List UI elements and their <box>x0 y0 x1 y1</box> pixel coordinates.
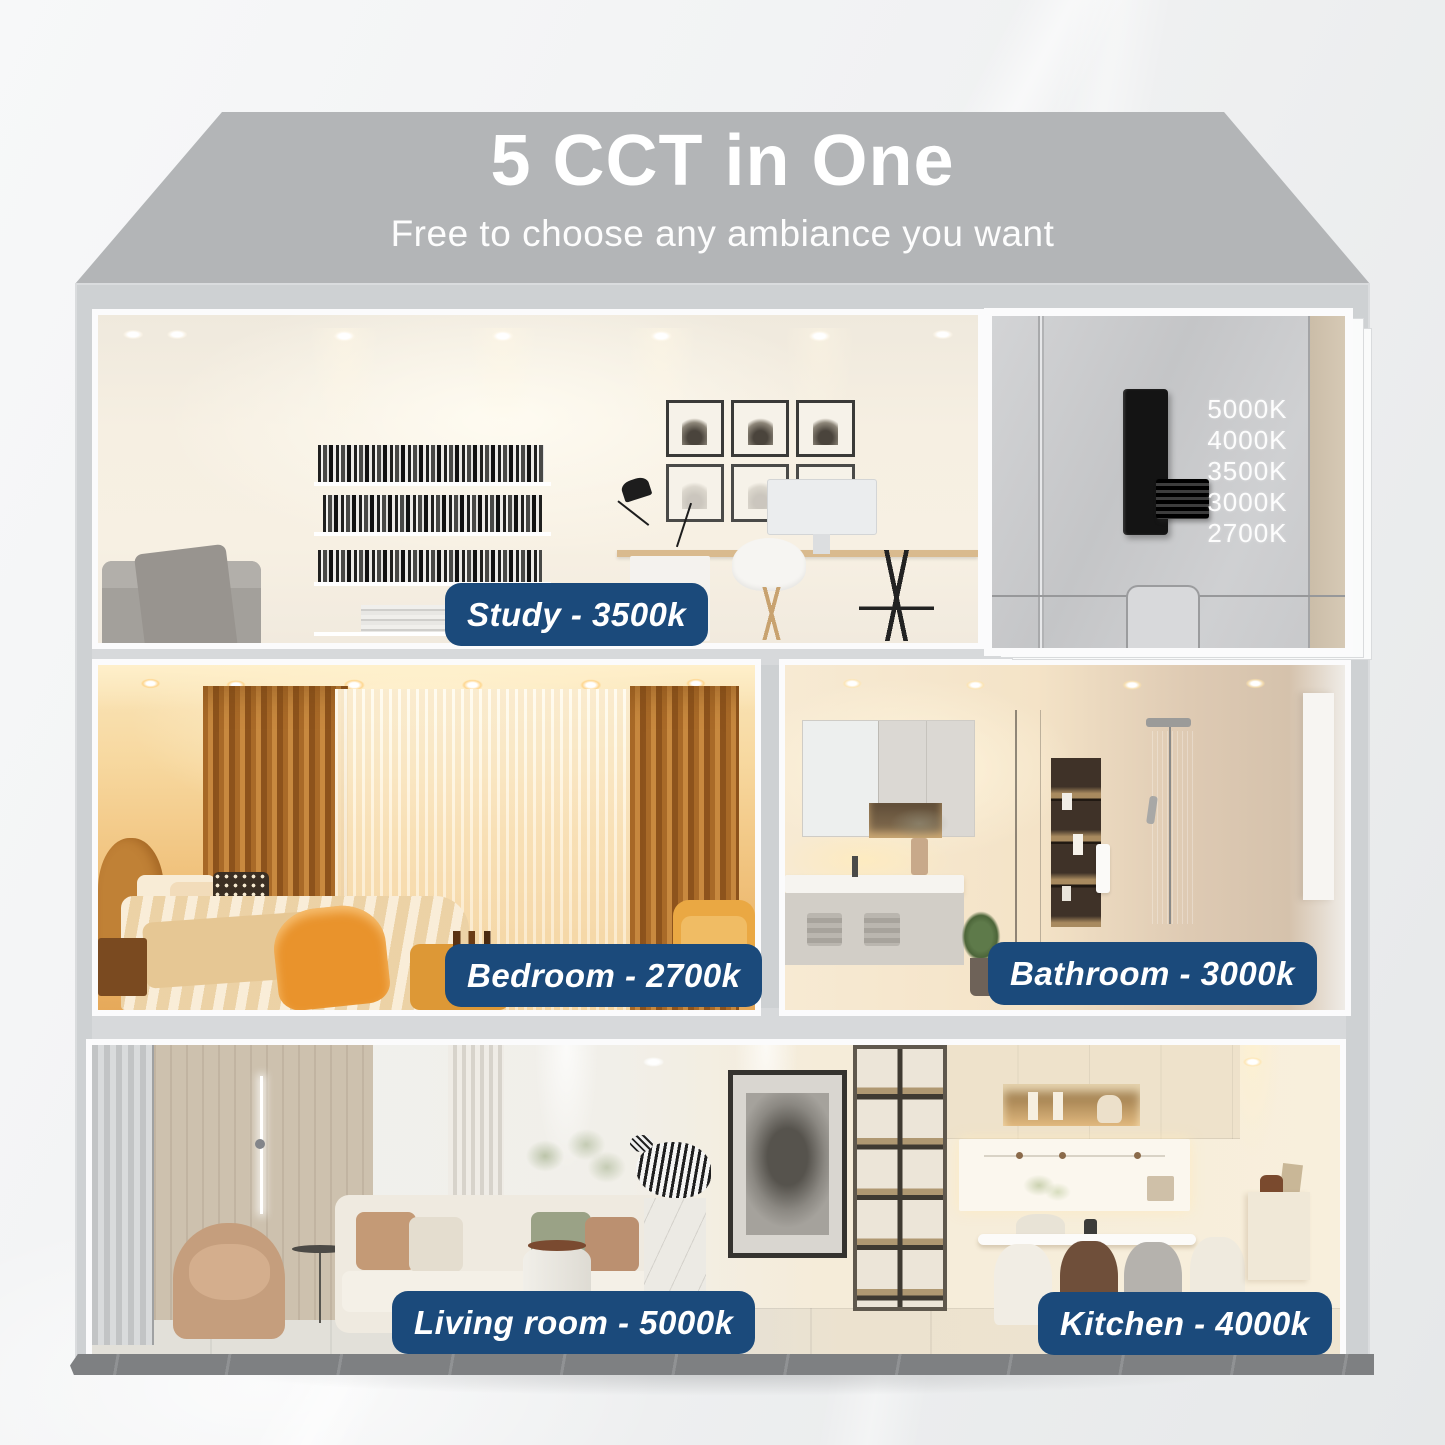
glass-door-edge <box>1040 710 1041 965</box>
toiletry-bottle <box>1062 793 1072 810</box>
product-infographic: 5 CCT in One Free to choose any ambiance… <box>0 0 1445 1445</box>
toiletry-bottle <box>1073 834 1083 855</box>
sofa-pillow <box>356 1212 417 1270</box>
plate-seam <box>1038 316 1044 648</box>
study-recessed-lights <box>98 318 978 351</box>
desk-chair <box>732 538 807 590</box>
side-cabinet <box>1248 1192 1310 1280</box>
page-title: 5 CCT in One <box>490 122 954 201</box>
cct-option: 5000K <box>1207 394 1287 425</box>
shower-pole <box>1169 724 1171 924</box>
living-window-curtain <box>92 1045 154 1345</box>
study-label: Study - 3500k <box>445 583 708 646</box>
vanity-cabinet <box>785 893 964 965</box>
towel-stack <box>807 913 843 946</box>
cct-option: 3500K <box>1207 456 1287 487</box>
vase <box>911 838 928 876</box>
living-armchair <box>173 1223 285 1339</box>
toiletry-bottle <box>1062 886 1071 902</box>
glass-door-edge <box>1015 710 1017 965</box>
small-sculpture <box>1260 1175 1282 1194</box>
desktop-computer <box>767 479 877 535</box>
bathroom-side-panel <box>1303 693 1334 900</box>
cct-selector-knob <box>1156 479 1209 519</box>
slab-shadow <box>120 1375 1340 1401</box>
table-flowers <box>1009 1170 1084 1214</box>
living-plant <box>504 1126 641 1201</box>
study-sofa <box>102 561 260 649</box>
bookshelf-row <box>314 536 552 586</box>
picture-frame <box>731 400 789 457</box>
cct-option: 3000K <box>1207 487 1287 518</box>
bookshelf-row <box>314 486 552 536</box>
bookshelf-row <box>314 436 552 486</box>
sofa-blanket <box>134 543 238 649</box>
hanging-towel <box>1096 844 1111 892</box>
picture-frame <box>796 400 854 457</box>
shower-head <box>1146 718 1191 726</box>
cct-option: 4000K <box>1207 425 1287 456</box>
kitchen-label: Kitchen - 4000k <box>1038 1292 1332 1355</box>
bathroom-recessed-lights <box>785 668 1345 699</box>
plate-edge-strip <box>1310 316 1345 648</box>
rail-hook <box>1016 1152 1023 1159</box>
zebra-sculpture <box>636 1142 711 1198</box>
decor-bust <box>1097 1095 1122 1123</box>
towel-stack <box>864 913 900 946</box>
wine-glass <box>1053 1092 1063 1120</box>
cct-option-list: 5000K 4000K 3500K 3000K 2700K <box>1207 394 1287 549</box>
reed-diffuser <box>1147 1176 1174 1201</box>
page-subtitle: Free to choose any ambiance you want <box>391 213 1055 255</box>
sofa-pillow <box>585 1217 639 1272</box>
bed-orange-throw <box>270 901 392 1012</box>
cct-option: 2700K <box>1207 518 1287 549</box>
bedroom-label: Bedroom - 2700k <box>445 944 762 1007</box>
house-roof: 5 CCT in One Free to choose any ambiance… <box>75 112 1370 284</box>
picture-frame <box>666 400 724 457</box>
cct-switch-inset: 5000K 4000K 3500K 3000K 2700K <box>984 308 1353 656</box>
living-room-label: Living room - 5000k <box>392 1291 755 1354</box>
vanity-faucet <box>852 856 858 877</box>
mounting-clip <box>1126 585 1200 648</box>
display-cabinet <box>853 1045 947 1311</box>
table-decor <box>1084 1219 1096 1236</box>
bathroom-label: Bathroom - 3000k <box>988 942 1317 1005</box>
desk-trestle-leg <box>859 550 934 642</box>
nightstand <box>98 938 147 997</box>
picture-frame <box>666 464 724 521</box>
shower-water <box>1152 731 1197 924</box>
framed-artwork <box>728 1070 847 1258</box>
wine-glass <box>1028 1092 1038 1120</box>
sofa-pillow <box>409 1217 463 1272</box>
vanity-counter <box>785 875 964 892</box>
desk-chair-legs <box>745 587 798 639</box>
ground-floor-slab <box>70 1354 1374 1375</box>
